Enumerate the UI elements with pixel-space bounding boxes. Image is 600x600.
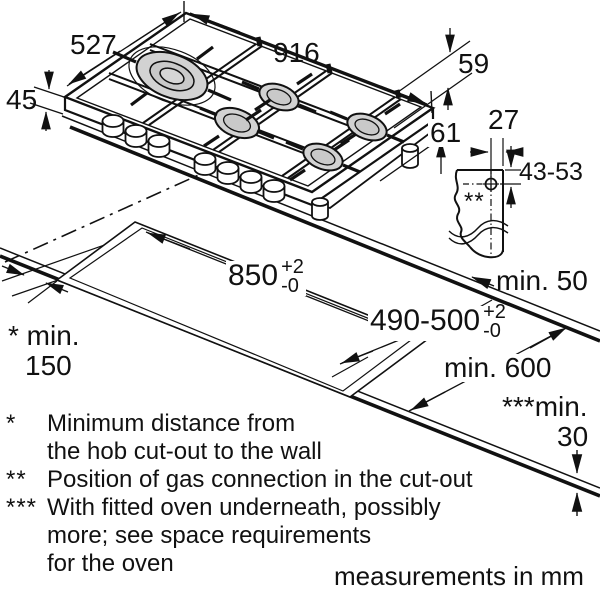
gas-marker-label: ** <box>464 190 485 214</box>
dim-cutout-length: 850+2-0 <box>226 261 306 296</box>
footnote-line: **Position of gas connection in the cut-… <box>6 466 473 494</box>
dim-front-depth: min. 600 <box>442 354 553 382</box>
dim-below-total: 61 <box>428 119 463 147</box>
hob-top-surface <box>65 13 433 192</box>
dim-side-clearance-1: * min. <box>8 322 80 350</box>
dim-rear-clearance: min. 50 <box>496 267 588 295</box>
dim-hob-width: 916 <box>273 39 320 67</box>
dim-worktop-thickness-1: ***min. <box>502 393 588 421</box>
footnotes: *Minimum distance from the hob cut-out t… <box>6 410 473 578</box>
dim-cutout-depth: 490-500+2-0 <box>368 306 508 341</box>
footnote-line: more; see space requirements <box>6 522 473 550</box>
dim-gas-depth-range: 43-53 <box>519 160 583 185</box>
dim-hob-depth: 527 <box>70 31 117 59</box>
footnote-line: the hob cut-out to the wall <box>6 438 473 466</box>
dim-side-clearance-2: 150 <box>25 352 72 380</box>
footnote-line: ***With fitted oven underneath, possibly <box>6 494 473 522</box>
dim-gas-offset: 27 <box>488 106 519 134</box>
installation-diagram-page: 527 916 59 45 61 27 43-53 ** 850+2-0 490… <box>0 0 600 600</box>
dim-hob-height: 45 <box>6 86 37 114</box>
gas-connection-detail <box>449 138 523 257</box>
dim-below-top: 59 <box>458 50 489 78</box>
units-note: measurements in mm <box>334 561 584 592</box>
hob-drawing <box>65 13 438 220</box>
dim-worktop-thickness-2: 30 <box>557 423 588 451</box>
footnote-line: *Minimum distance from <box>6 410 473 438</box>
